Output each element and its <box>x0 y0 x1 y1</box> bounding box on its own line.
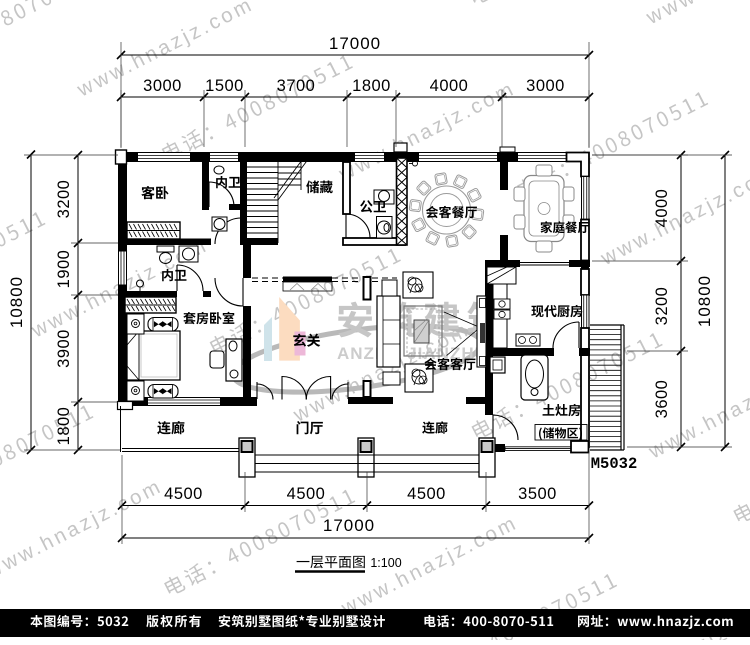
svg-text:3200: 3200 <box>55 180 73 219</box>
svg-text:3600: 3600 <box>653 380 671 419</box>
svg-text:3000: 3000 <box>143 77 182 95</box>
svg-text:4500: 4500 <box>407 485 446 503</box>
svg-text:4000: 4000 <box>430 77 469 95</box>
svg-text:1900: 1900 <box>55 250 73 289</box>
svg-text:17000: 17000 <box>329 34 381 53</box>
svg-text:1500: 1500 <box>205 77 244 95</box>
svg-text:3700: 3700 <box>277 77 316 95</box>
svg-text:3200: 3200 <box>653 287 671 326</box>
svg-text:10800: 10800 <box>7 276 26 328</box>
svg-text:3500: 3500 <box>518 485 557 503</box>
svg-text:1800: 1800 <box>55 407 73 446</box>
svg-text:3900: 3900 <box>55 329 73 368</box>
svg-text:4500: 4500 <box>164 485 203 503</box>
svg-text:10800: 10800 <box>695 275 714 327</box>
svg-text:17000: 17000 <box>323 516 375 535</box>
svg-text:1:100: 1:100 <box>370 556 401 570</box>
svg-text:M5032: M5032 <box>591 455 638 473</box>
svg-text:1800: 1800 <box>352 77 391 95</box>
svg-text:4500: 4500 <box>287 485 326 503</box>
svg-text:3000: 3000 <box>526 77 565 95</box>
svg-text:4000: 4000 <box>653 189 671 228</box>
